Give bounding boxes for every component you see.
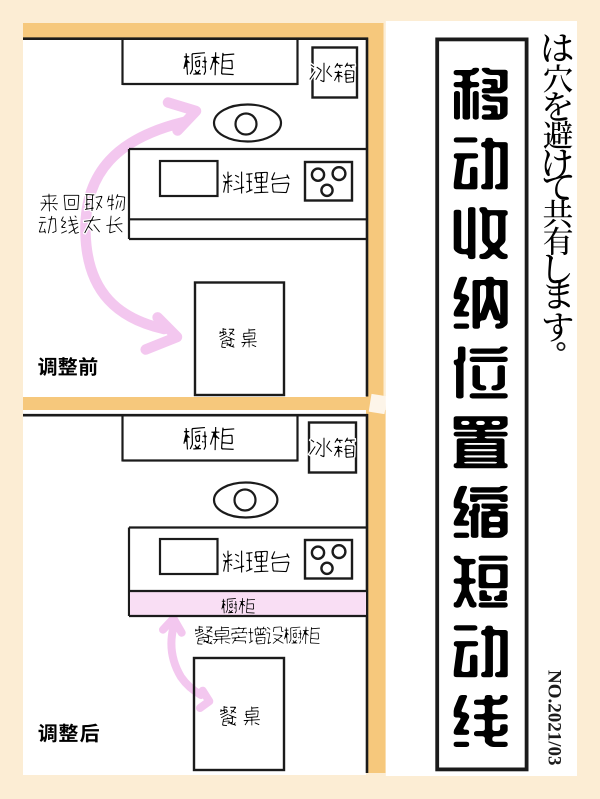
svg-text:NO.2021/03: NO.2021/03 bbox=[544, 670, 565, 766]
